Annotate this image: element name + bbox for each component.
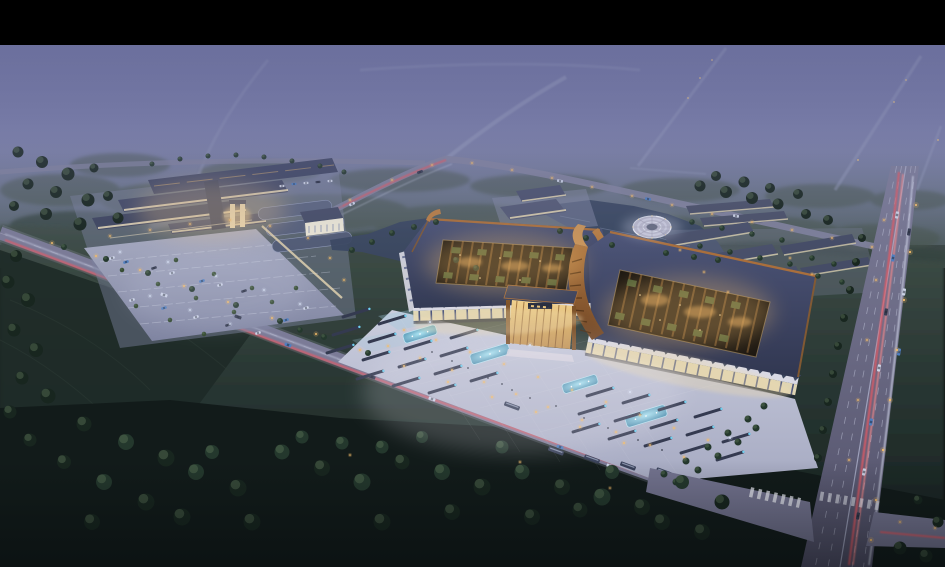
aerial-night-rendering — [0, 0, 945, 567]
lot-sheen — [125, 250, 305, 330]
rendering-canvas — [0, 0, 945, 567]
building-glow — [603, 277, 773, 347]
haze-overlay — [0, 45, 945, 255]
bottom-vignette — [0, 460, 945, 567]
plaza-sheen — [362, 330, 682, 454]
letterbox-top — [0, 0, 945, 45]
